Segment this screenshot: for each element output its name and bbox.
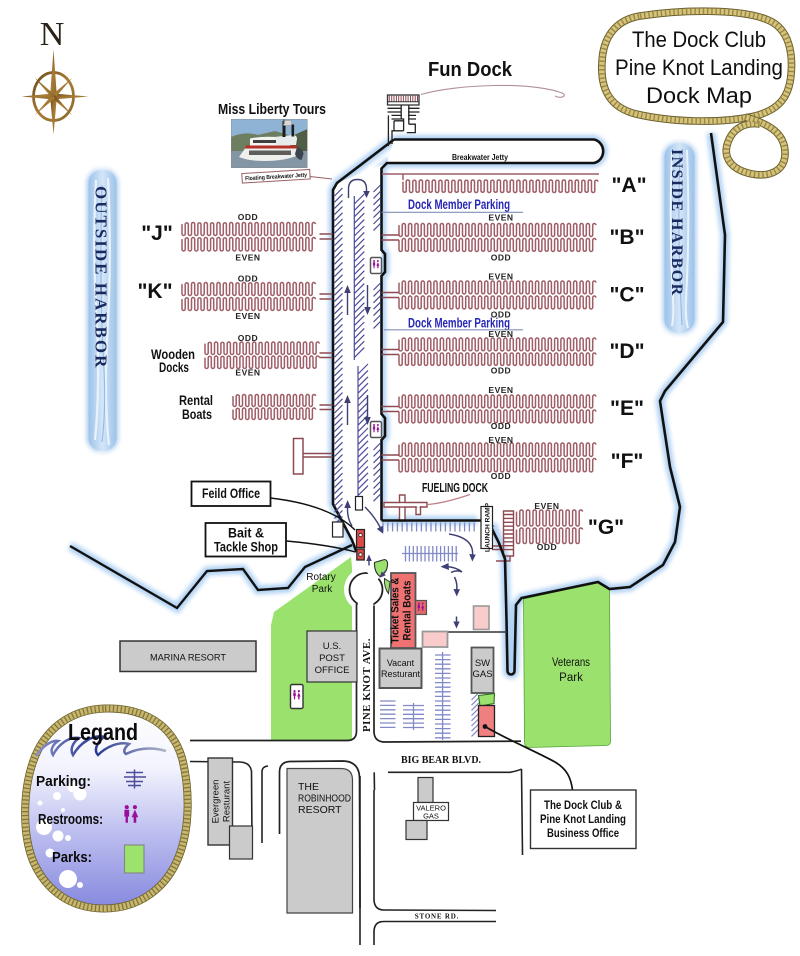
svg-text:EVEN: EVEN (235, 253, 260, 263)
svg-text:"B": "B" (609, 226, 644, 249)
svg-text:LAUNCH RAMP: LAUNCH RAMP (485, 502, 492, 552)
svg-text:Docks: Docks (159, 360, 189, 375)
svg-text:GAS: GAS (472, 669, 492, 680)
svg-text:Legand: Legand (68, 719, 138, 745)
svg-text:EVEN: EVEN (235, 311, 260, 321)
svg-text:Boats: Boats (182, 407, 212, 422)
svg-text:The Dock Club &: The Dock Club & (544, 800, 622, 812)
svg-text:Bait &: Bait & (228, 526, 264, 541)
svg-text:ODD: ODD (537, 542, 557, 552)
svg-text:EVEN: EVEN (488, 213, 513, 223)
svg-text:Breakwater Jetty: Breakwater Jetty (452, 152, 508, 162)
svg-text:MARINA RESORT: MARINA RESORT (150, 653, 226, 664)
svg-text:"E": "E" (610, 397, 644, 420)
svg-text:Resturant: Resturant (222, 781, 233, 823)
svg-text:Evergreen: Evergreen (211, 780, 222, 824)
svg-text:EVEN: EVEN (488, 385, 513, 395)
svg-text:"A": "A" (611, 174, 646, 197)
svg-text:ODD: ODD (491, 253, 511, 263)
svg-text:Tackle Shop: Tackle Shop (214, 540, 278, 555)
svg-text:GAS: GAS (423, 812, 439, 821)
svg-text:Park: Park (312, 584, 334, 595)
svg-text:THE: THE (298, 781, 319, 793)
svg-text:Parking:: Parking: (36, 773, 91, 790)
svg-text:INSIDE HARBOR: INSIDE HARBOR (668, 149, 685, 297)
svg-text:PINE KNOT AVE.: PINE KNOT AVE. (361, 638, 373, 732)
svg-text:SW: SW (475, 658, 490, 669)
svg-text:Park: Park (559, 672, 583, 684)
svg-text:EVEN: EVEN (235, 368, 260, 378)
svg-text:Resturant: Resturant (381, 669, 421, 679)
svg-text:ODD: ODD (491, 366, 511, 376)
svg-text:"G": "G" (588, 516, 624, 539)
svg-text:BIG BEAR BLVD.: BIG BEAR BLVD. (401, 755, 481, 766)
svg-text:STONE RD.: STONE RD. (415, 913, 459, 921)
svg-text:ODD: ODD (491, 421, 511, 431)
svg-text:ODD: ODD (238, 212, 258, 222)
svg-text:Vacant: Vacant (387, 658, 415, 668)
svg-text:U.S.: U.S. (323, 641, 341, 652)
svg-text:EVEN: EVEN (534, 501, 559, 511)
svg-text:EVEN: EVEN (488, 272, 513, 282)
svg-text:Feild Office: Feild Office (202, 486, 260, 501)
svg-text:ODD: ODD (238, 274, 258, 284)
svg-text:OUTSIDE HARBOR: OUTSIDE HARBOR (92, 186, 111, 369)
svg-text:"J": "J" (141, 222, 173, 245)
svg-text:Pine Knot Landing: Pine Knot Landing (540, 814, 626, 826)
svg-text:Veterans: Veterans (552, 657, 590, 669)
svg-text:ODD: ODD (238, 333, 258, 343)
svg-text:Rental: Rental (179, 393, 213, 408)
svg-text:ODD: ODD (491, 471, 511, 481)
svg-text:Rotary: Rotary (306, 572, 335, 583)
svg-text:FUELING DOCK: FUELING DOCK (422, 480, 488, 495)
svg-text:"C": "C" (609, 284, 644, 307)
svg-text:Dock Member Parking: Dock Member Parking (408, 197, 510, 212)
svg-text:"D": "D" (609, 340, 644, 363)
svg-text:ROBINHOOD: ROBINHOOD (298, 793, 351, 805)
svg-text:RESORT: RESORT (298, 804, 342, 816)
svg-text:Miss Liberty Tours: Miss Liberty Tours (218, 101, 326, 118)
svg-text:OFFICE: OFFICE (315, 665, 350, 676)
svg-text:Ticket Sales &: Ticket Sales & (390, 577, 402, 643)
svg-text:Dock Map: Dock Map (646, 83, 752, 108)
svg-text:The Dock Club: The Dock Club (632, 27, 766, 52)
svg-text:EVEN: EVEN (488, 435, 513, 445)
svg-text:EVEN: EVEN (488, 329, 513, 339)
svg-text:Business Office: Business Office (547, 828, 619, 840)
svg-text:POST: POST (319, 653, 345, 664)
svg-text:"K": "K" (137, 280, 172, 303)
svg-text:"F": "F" (611, 450, 644, 473)
svg-text:Fun Dock: Fun Dock (428, 59, 513, 81)
svg-text:Parks:: Parks: (52, 849, 92, 866)
svg-text:Pine Knot Landing: Pine Knot Landing (615, 55, 783, 80)
svg-text:N: N (40, 16, 65, 53)
svg-text:Rental Boats: Rental Boats (402, 581, 414, 641)
svg-text:Restrooms:: Restrooms: (38, 811, 103, 828)
